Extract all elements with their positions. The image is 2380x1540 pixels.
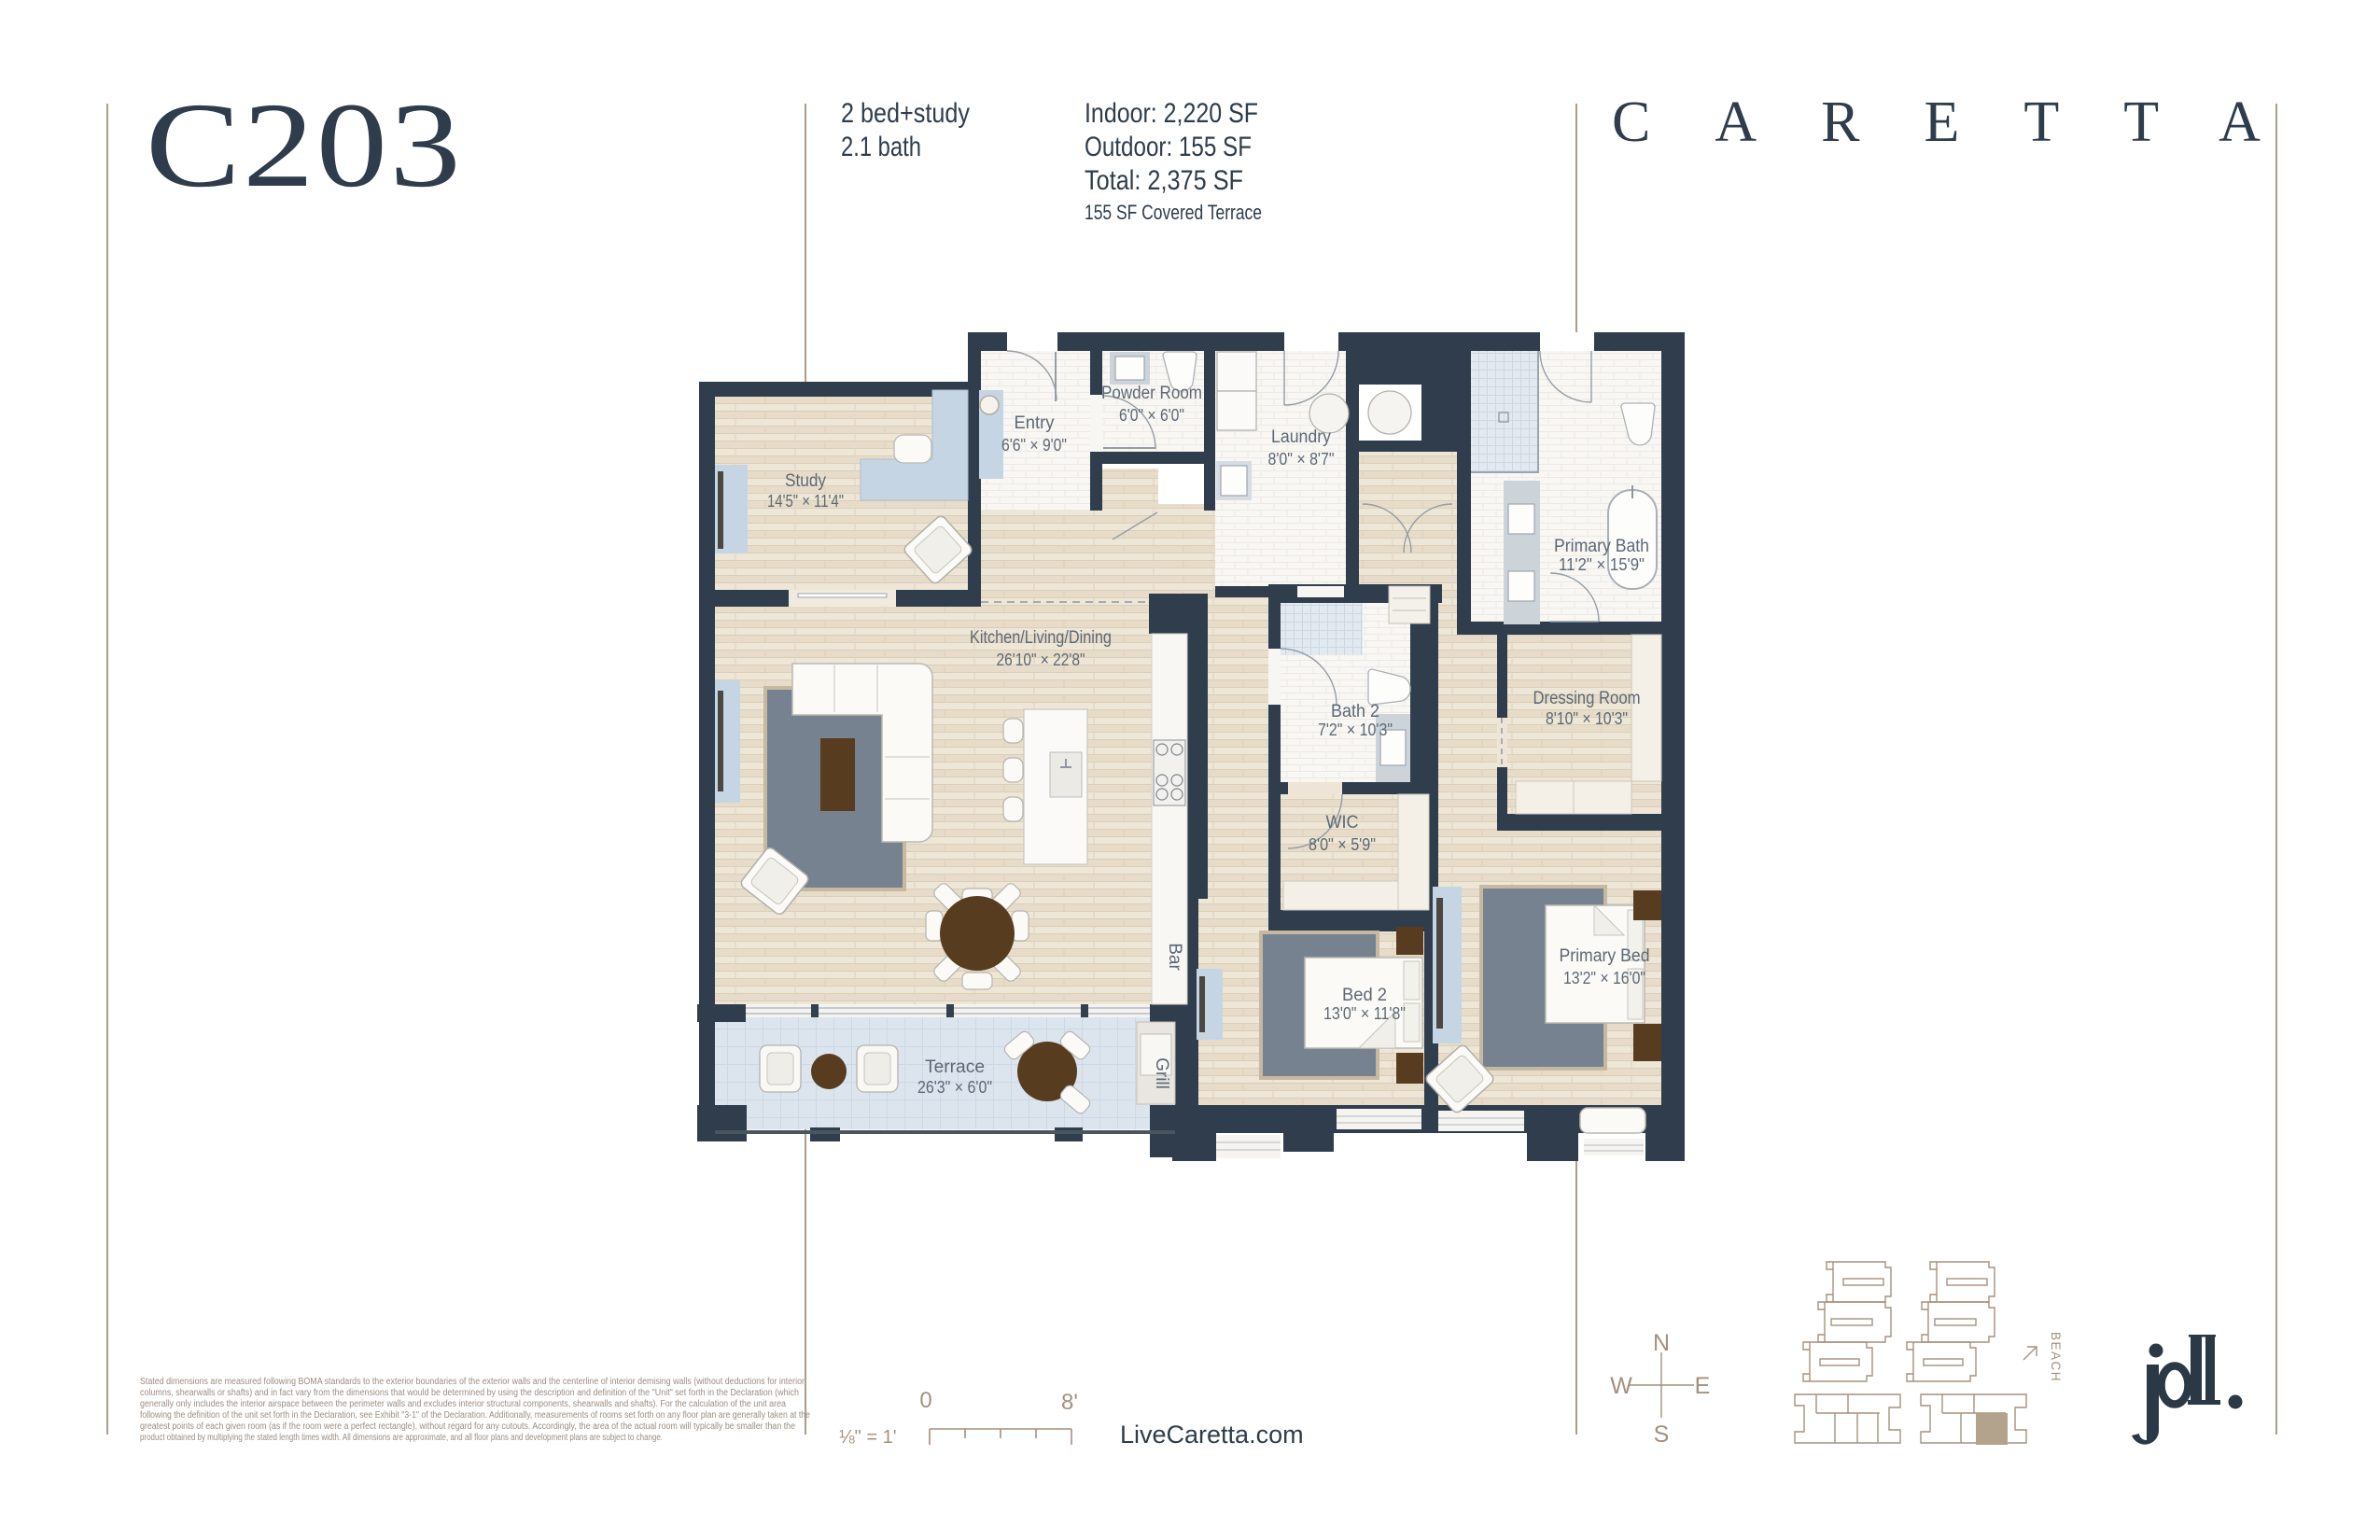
svg-text:6'6" × 9'0": 6'6" × 9'0": [1001, 436, 1067, 455]
svg-text:Indoor: 2,220 SF: Indoor: 2,220 SF: [1085, 98, 1258, 129]
svg-text:2.1 bath: 2.1 bath: [841, 132, 921, 162]
svg-text:Bed 2: Bed 2: [1342, 986, 1387, 1005]
svg-text:S: S: [1654, 1421, 1670, 1448]
svg-text:13'2" × 16'0": 13'2" × 16'0": [1563, 969, 1645, 987]
svg-text:Outdoor: 155 SF: Outdoor: 155 SF: [1085, 132, 1252, 162]
svg-text:E: E: [1695, 1373, 1711, 1399]
svg-text:BEACH: BEACH: [2049, 1332, 2063, 1382]
svg-text:Entry: Entry: [1015, 413, 1055, 433]
svg-text:Terrace: Terrace: [925, 1057, 985, 1077]
svg-text:Primary Bed: Primary Bed: [1560, 946, 1650, 966]
svg-text:product obtained by multiplyin: product obtained by multiplying the stat…: [140, 1433, 663, 1443]
svg-text:Primary Bath: Primary Bath: [1554, 537, 1649, 556]
svg-text:11'2" × 15'9": 11'2" × 15'9": [1559, 555, 1645, 574]
svg-text:W: W: [1610, 1373, 1632, 1399]
svg-text:0: 0: [919, 1388, 931, 1413]
svg-text:26'3" × 6'0": 26'3" × 6'0": [917, 1078, 992, 1097]
svg-text:Study: Study: [785, 471, 826, 491]
svg-text:13'0" × 11'8": 13'0" × 11'8": [1323, 1004, 1406, 1023]
svg-text:7'2" × 10'3": 7'2" × 10'3": [1318, 721, 1393, 739]
svg-text:WIC: WIC: [1326, 813, 1359, 833]
svg-text:14'5" × 11'4": 14'5" × 11'4": [767, 492, 844, 511]
svg-text:columns, shearwalls or shafts): columns, shearwalls or shafts) and in fa…: [140, 1388, 799, 1398]
svg-text:C203: C203: [146, 78, 463, 213]
svg-text:2 bed+study: 2 bed+study: [841, 98, 970, 129]
svg-text:greatest points of each given: greatest points of each given room (as i…: [140, 1421, 795, 1432]
svg-text:Grill: Grill: [1152, 1057, 1171, 1089]
svg-text:LiveCaretta.com: LiveCaretta.com: [1120, 1421, 1304, 1449]
svg-text:Bath 2: Bath 2: [1331, 702, 1379, 721]
svg-text:8'0" × 8'7": 8'0" × 8'7": [1268, 450, 1335, 469]
svg-text:6'0" × 6'0": 6'0" × 6'0": [1119, 406, 1184, 425]
svg-text:26'10" × 22'8": 26'10" × 22'8": [997, 651, 1085, 669]
svg-text:8': 8': [1061, 1390, 1078, 1415]
svg-text:Kitchen/Living/Dining: Kitchen/Living/Dining: [970, 628, 1112, 648]
svg-text:N: N: [1653, 1330, 1670, 1356]
svg-text:⅛" = 1': ⅛" = 1': [839, 1427, 897, 1448]
svg-text:Bar: Bar: [1165, 943, 1184, 971]
svg-text:CARETTA: CARETTA: [1612, 91, 2325, 154]
svg-text:generally only includes the in: generally only includes the interior air…: [140, 1399, 786, 1409]
svg-text:Dressing Room: Dressing Room: [1533, 689, 1641, 708]
svg-text:following the definition of th: following the definition of the unit set…: [140, 1410, 810, 1421]
svg-text:8'10" × 10'3": 8'10" × 10'3": [1546, 709, 1628, 728]
svg-text:8'0" × 5'9": 8'0" × 5'9": [1309, 835, 1376, 854]
svg-text:155 SF Covered Terrace: 155 SF Covered Terrace: [1085, 201, 1262, 224]
svg-text:Stated dimensions are measured: Stated dimensions are measured following…: [140, 1377, 805, 1387]
svg-text:Laundry: Laundry: [1271, 427, 1331, 447]
svg-text:Total: 2,375 SF: Total: 2,375 SF: [1085, 165, 1243, 196]
svg-text:Powder Room: Powder Room: [1101, 384, 1202, 403]
